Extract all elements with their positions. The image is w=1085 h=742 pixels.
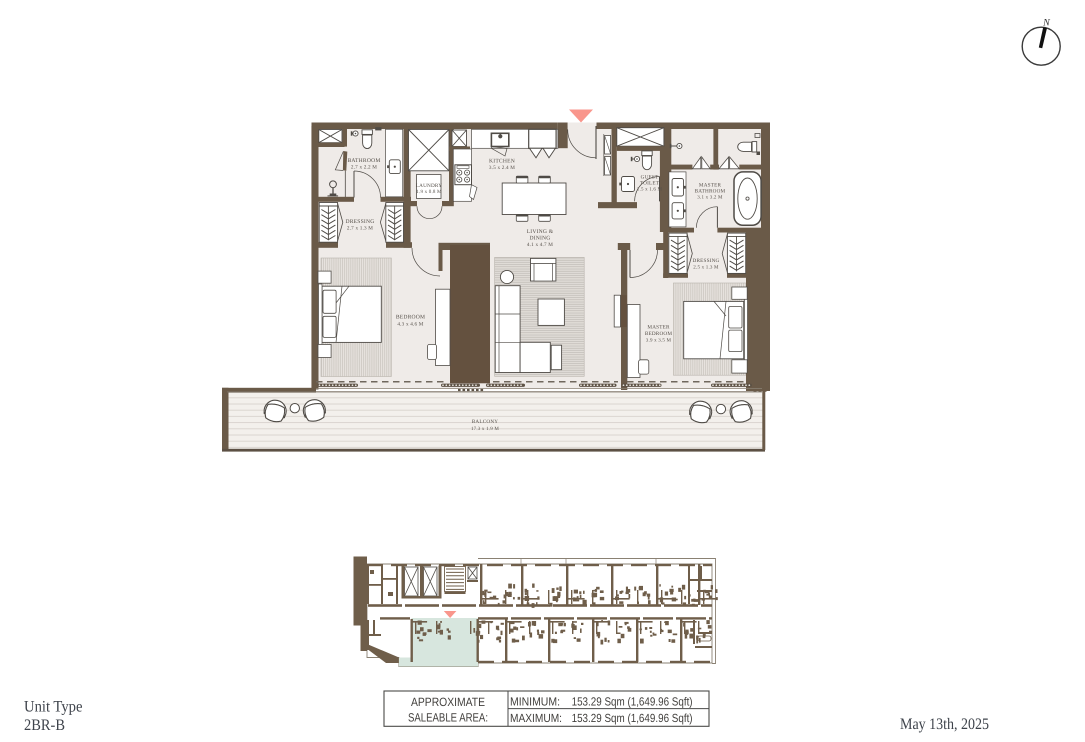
svg-text:1.9 x 0.8 M: 1.9 x 0.8 M [416,189,442,195]
svg-text:DRESSING: DRESSING [346,219,375,225]
svg-text:LAUNDRY: LAUNDRY [416,183,443,189]
svg-text:TOILET: TOILET [640,180,660,186]
svg-text:MAXIMUM:: MAXIMUM: [510,711,562,725]
svg-text:May 13th, 2025: May 13th, 2025 [900,716,989,733]
svg-text:3.9 x 3.5 M: 3.9 x 3.5 M [646,337,672,343]
svg-text:MASTER: MASTER [647,324,670,330]
svg-text:2.7 x 1.3 M: 2.7 x 1.3 M [347,225,373,231]
svg-text:BATHROOM: BATHROOM [348,158,381,164]
svg-text:2.7 x 2.2 M: 2.7 x 2.2 M [351,164,377,170]
svg-text:1.5 x 1.6 M: 1.5 x 1.6 M [637,186,663,192]
svg-text:SALEABLE AREA:: SALEABLE AREA: [408,711,488,725]
svg-text:Unit Type: Unit Type [24,699,83,716]
svg-text:BALCONY: BALCONY [472,419,499,425]
svg-text:153.29 Sqm (1,649.96 Sqft): 153.29 Sqm (1,649.96 Sqft) [572,694,693,708]
svg-text:MINIMUM:: MINIMUM: [510,694,560,708]
svg-text:N: N [1042,18,1051,29]
svg-text:153.29 Sqm (1,649.96 Sqft): 153.29 Sqm (1,649.96 Sqft) [572,711,693,725]
svg-text:LIVING &: LIVING & [527,229,554,235]
svg-text:BEDROOM: BEDROOM [645,331,673,337]
svg-text:2.5 x 1.3 M: 2.5 x 1.3 M [693,265,719,271]
svg-text:3.1 x 3.2 M: 3.1 x 3.2 M [697,195,723,201]
svg-text:2BR-B: 2BR-B [24,717,65,734]
svg-text:DRESSING: DRESSING [693,258,720,264]
svg-text:3.5 x 2.4 M: 3.5 x 2.4 M [489,165,515,171]
svg-text:BATHROOM: BATHROOM [695,189,726,195]
svg-text:4.1 x 4.7 M: 4.1 x 4.7 M [527,242,553,248]
svg-text:APPROXIMATE: APPROXIMATE [411,695,485,709]
svg-text:KITCHEN: KITCHEN [489,158,515,164]
svg-text:4.3 x 4.6 M: 4.3 x 4.6 M [397,322,423,328]
svg-text:17.3 x 1.9 M: 17.3 x 1.9 M [471,426,499,432]
svg-text:BEDROOM: BEDROOM [396,315,425,321]
svg-text:DINING: DINING [529,236,550,242]
